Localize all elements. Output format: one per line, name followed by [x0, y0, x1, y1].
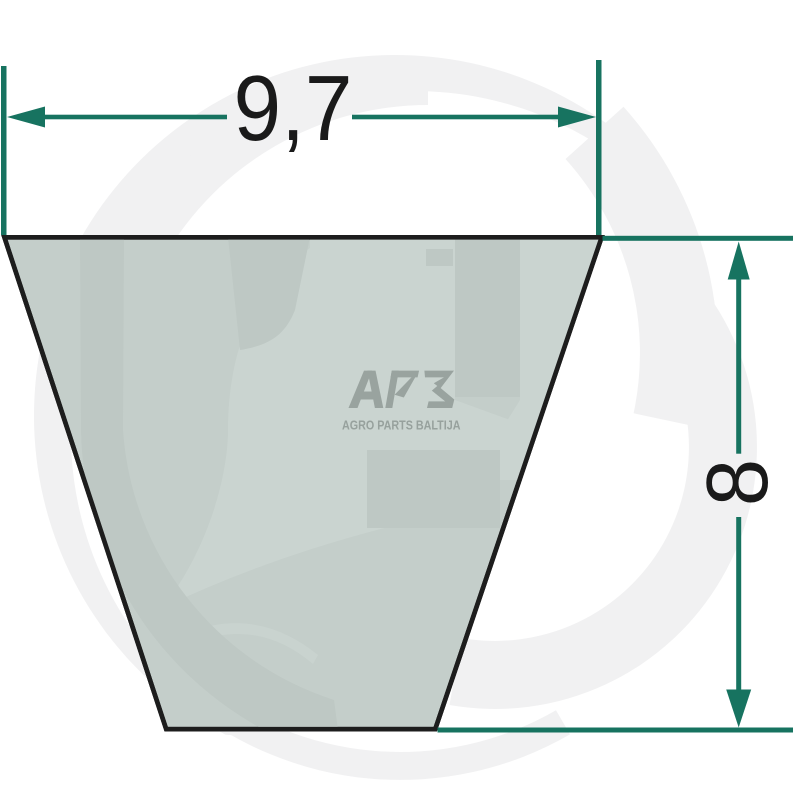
- svg-text:9,7: 9,7: [234, 56, 353, 160]
- svg-text:AGRO PARTS BALTIJA: AGRO PARTS BALTIJA: [342, 418, 461, 433]
- svg-text:8: 8: [689, 459, 786, 506]
